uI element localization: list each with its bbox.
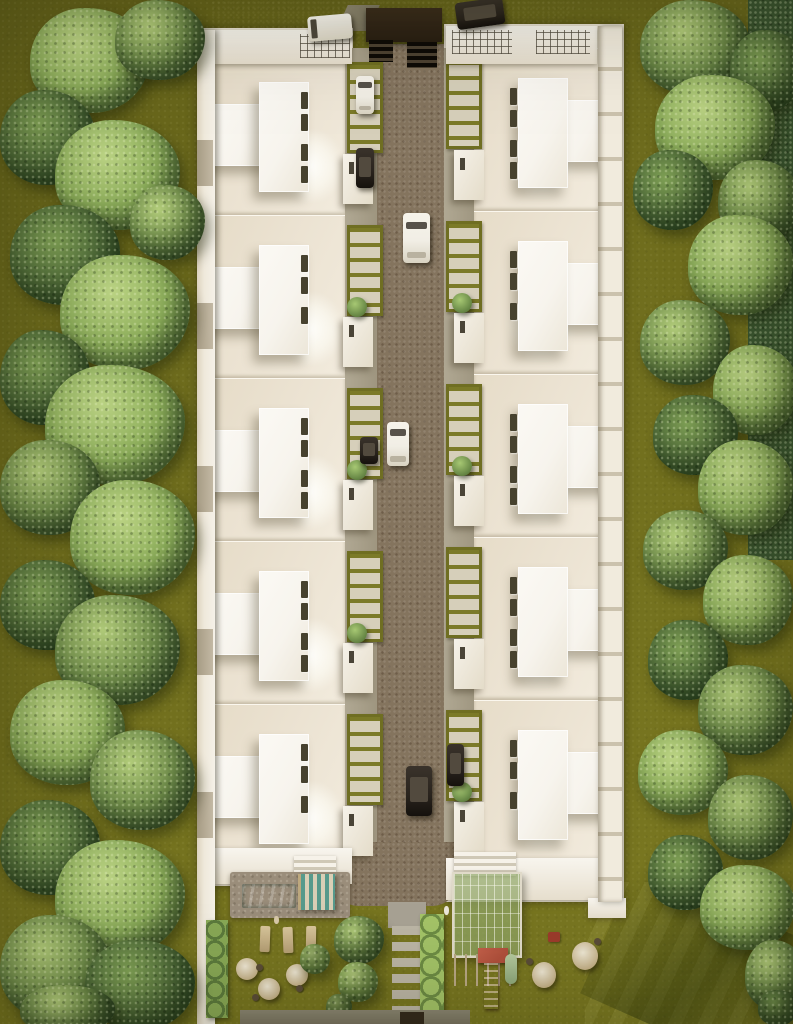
roof-block [518,730,568,840]
skylight-slit [301,492,308,509]
skylight-slit [510,577,517,594]
skylight-slit [510,466,517,483]
balcony-recess [197,140,213,186]
skylight-slit [301,440,308,457]
entry-porch [454,476,484,526]
round-table [532,962,556,988]
garden-tree [300,944,330,974]
skylight-slit [301,744,308,761]
skylight-slit [510,110,517,127]
balcony-recess [197,303,213,349]
skylight-slit [510,140,517,157]
skylight-slit [301,92,308,109]
skylight-slit [510,629,517,646]
skylight-slit [301,766,308,783]
swimming-pool [242,884,296,908]
skylight-slit [301,655,308,672]
entry-porch [454,639,484,689]
round-table [572,942,598,970]
skylight-slit [510,303,517,320]
townhouse-unit-left-4 [197,541,377,704]
entry-porch [343,643,373,693]
barbecue [548,932,560,942]
townhouse-unit-right-4 [444,537,624,700]
courtyard-tree [452,293,472,313]
roof-block [518,404,568,514]
courtyard-tree [347,297,367,317]
gate-grate-right [407,42,437,68]
skylight-slit [301,277,308,294]
parked-car-left-middle [360,437,378,464]
tree-canopy [708,775,793,860]
entry-porch [343,317,373,367]
skylight-slit [510,740,517,757]
white-sedan-road-middle [387,422,409,466]
parked-car-left-upper [356,76,374,114]
skylight-slit [510,251,517,268]
roof-railing [536,30,590,54]
tree-canopy [115,0,205,80]
townhouse-unit-right-3 [444,374,624,537]
roof-railing [452,30,512,54]
parked-car-left-2 [356,148,374,188]
skylight-slit [301,166,308,183]
townhouse-unit-left-5 [197,704,377,867]
skylight-slit [301,603,308,620]
planter-grid [347,714,383,805]
tree-canopy [633,150,713,230]
skylight-slit [301,633,308,650]
person [444,906,449,915]
pool-cabana [298,874,335,910]
pergola-canopy [452,872,522,958]
tree-canopy [90,730,195,830]
skylight-slit [510,273,517,290]
perimeter-path [240,1010,470,1024]
roof-block [518,241,568,351]
parked-car-right-lower [447,744,464,786]
chair [526,958,533,965]
skylight-slit [510,88,517,105]
townhouse-unit-right-1 [444,48,624,211]
townhouse-unit-left-1 [197,52,377,215]
skylight-slit [510,162,517,179]
skylight-slit [301,255,308,272]
skylight-slit [510,436,517,453]
skylight-slit [301,307,308,324]
playground-stairs [484,963,498,1009]
townhouse-unit-left-2 [197,215,377,378]
chair [296,985,303,992]
skylight-slit [301,796,308,813]
skylight-slit [510,762,517,779]
townhouse-unit-right-5 [444,700,624,863]
skylight-slit [301,418,308,435]
sun-lounger [283,927,294,953]
balcony-recess [197,466,213,512]
dark-suv-road-lower [406,766,432,816]
chair [256,964,263,971]
balcony-recess [197,629,213,675]
planter-grid [446,58,482,149]
planter-grid [446,547,482,638]
aerial-render-scene [0,0,793,1024]
stepping-stone-path [392,926,422,1020]
parasol-table [236,958,258,980]
gate-mat [400,1012,424,1024]
person [274,916,279,924]
entry-porch [454,150,484,200]
bush-row [206,920,228,1018]
chair [594,938,601,945]
skylight-slit [301,581,308,598]
entry-gate-canopy [366,8,442,42]
white-sedan-road-upper [403,213,430,263]
tree-canopy [70,480,195,595]
entry-porch [454,313,484,363]
townhouse-unit-left-3 [197,378,377,541]
skylight-slit [301,144,308,161]
playground-slide [505,954,517,984]
tree-canopy [688,215,793,315]
roof-block [518,78,568,188]
skylight-slit [510,599,517,616]
chair [252,994,259,1001]
sun-lounger [260,926,271,952]
skylight-slit [510,792,517,809]
roof-block [518,567,568,677]
courtyard-tree [452,456,472,476]
east-perimeter-wall [598,26,622,902]
entry-porch [454,802,484,852]
skylight-slit [301,114,308,131]
skylight-slit [510,651,517,668]
playground-platform [478,948,508,963]
parasol-table [258,978,280,1000]
skylight-slit [301,470,308,487]
tree-canopy [758,990,793,1024]
skylight-slit [510,488,517,505]
tree-canopy [700,865,793,950]
balcony-recess [197,792,213,838]
hedge-column [420,914,444,1018]
white-van [307,13,353,42]
garden-tree [334,916,384,964]
courtyard-tree [347,623,367,643]
tree-canopy [130,185,205,260]
entry-porch [343,480,373,530]
townhouse-unit-right-2 [444,211,624,374]
skylight-slit [510,414,517,431]
